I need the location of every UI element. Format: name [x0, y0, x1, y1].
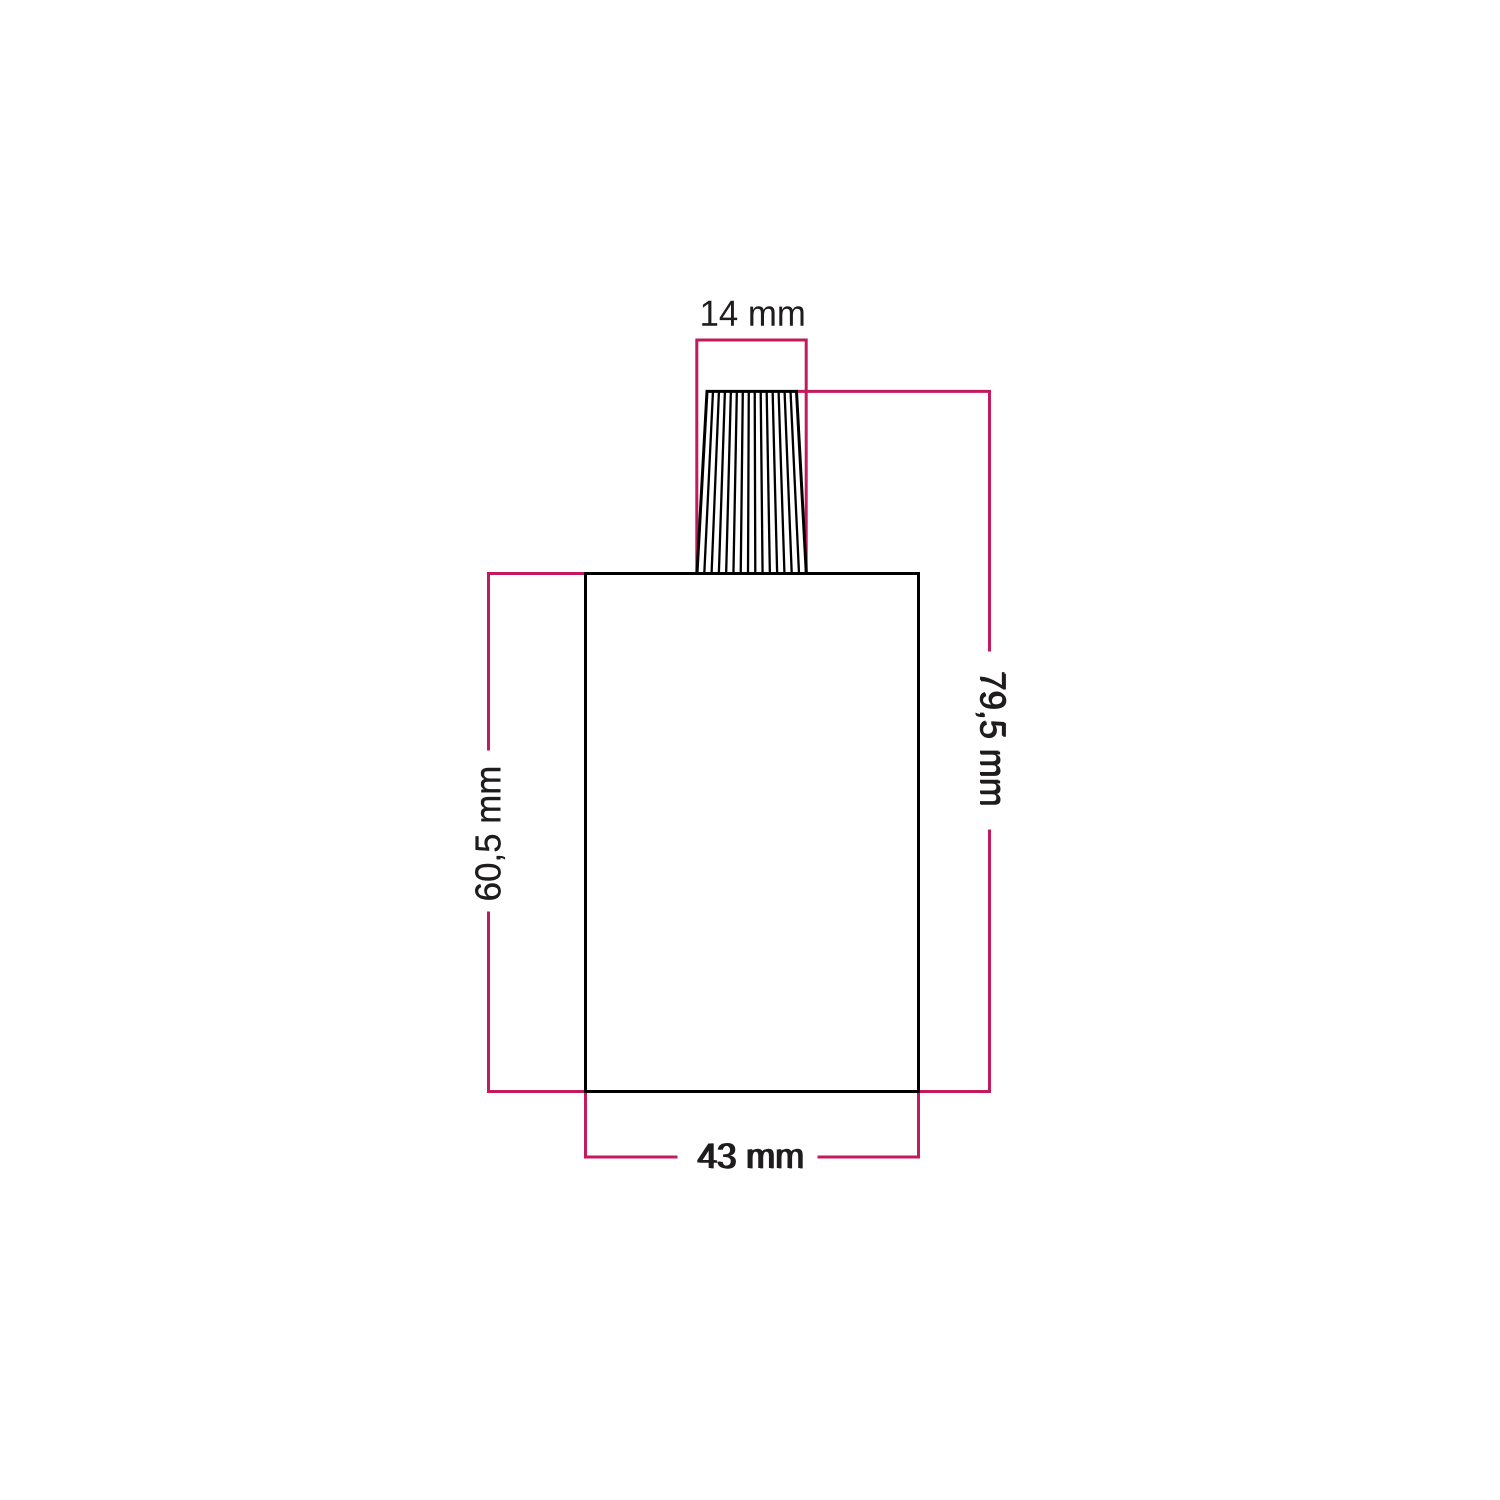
svg-text:60,5 mm: 60,5 mm — [469, 765, 508, 901]
svg-text:79,5 mm: 79,5 mm — [972, 670, 1011, 806]
